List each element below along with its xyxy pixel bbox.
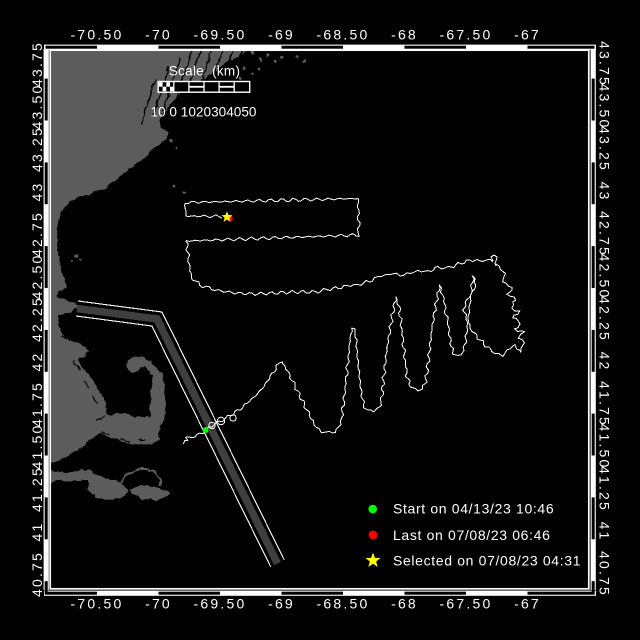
svg-text:43.75: 43.75 [597,41,613,87]
svg-text:40.75: 40.75 [29,551,45,597]
svg-text:-68.50: -68.50 [317,27,370,43]
svg-text:-70.50: -70.50 [71,27,124,43]
svg-text:42.75: 42.75 [597,211,613,257]
svg-text:41: 41 [29,522,45,542]
svg-text:-70.50: -70.50 [71,596,124,612]
svg-text:43.50: 43.50 [597,83,613,129]
svg-text:40.75: 40.75 [597,551,613,597]
svg-text:41.25: 41.25 [29,466,45,512]
svg-text:43.25: 43.25 [597,126,613,172]
svg-text:-67.50: -67.50 [440,27,493,43]
svg-text:Start on 04/13/23 10:46: Start on 04/13/23 10:46 [393,500,554,516]
svg-text:-69: -69 [268,596,295,612]
svg-text:42.50: 42.50 [29,253,45,299]
svg-text:43.50: 43.50 [29,83,45,129]
svg-text:42: 42 [29,352,45,372]
svg-text:-70: -70 [145,596,172,612]
svg-text:43: 43 [597,182,613,202]
svg-text:43.75: 43.75 [29,41,45,87]
svg-text:-69: -69 [268,27,295,43]
svg-text:43.25: 43.25 [29,126,45,172]
svg-text:42.25: 42.25 [597,296,613,342]
svg-text:-70: -70 [145,27,172,43]
svg-text:-69.50: -69.50 [194,27,247,43]
svg-text:41.75: 41.75 [597,381,613,427]
svg-text:Last on 07/08/23 06:46: Last on 07/08/23 06:46 [393,527,551,543]
svg-text:42.75: 42.75 [29,211,45,257]
svg-text:41.50: 41.50 [597,423,613,469]
svg-text:42.50: 42.50 [597,253,613,299]
svg-text:41.25: 41.25 [597,466,613,512]
svg-text:-68: -68 [391,596,418,612]
svg-text:-68.50: -68.50 [317,596,370,612]
svg-text:-68: -68 [391,27,418,43]
svg-text:42: 42 [597,352,613,372]
svg-text:-67: -67 [514,596,541,612]
svg-text:-69.50: -69.50 [194,596,247,612]
svg-text:10 0 1020304050: 10 0 1020304050 [151,105,257,120]
svg-text:43: 43 [29,182,45,202]
svg-text:Selected on 07/08/23 04:31: Selected on 07/08/23 04:31 [393,552,581,568]
svg-text:-67.50: -67.50 [440,596,493,612]
svg-text:41: 41 [597,522,613,542]
svg-text:Scale (km): Scale (km) [169,64,241,79]
svg-text:42.25: 42.25 [29,296,45,342]
svg-text:41.50: 41.50 [29,423,45,469]
svg-text:41.75: 41.75 [29,381,45,427]
svg-text:-67: -67 [514,27,541,43]
